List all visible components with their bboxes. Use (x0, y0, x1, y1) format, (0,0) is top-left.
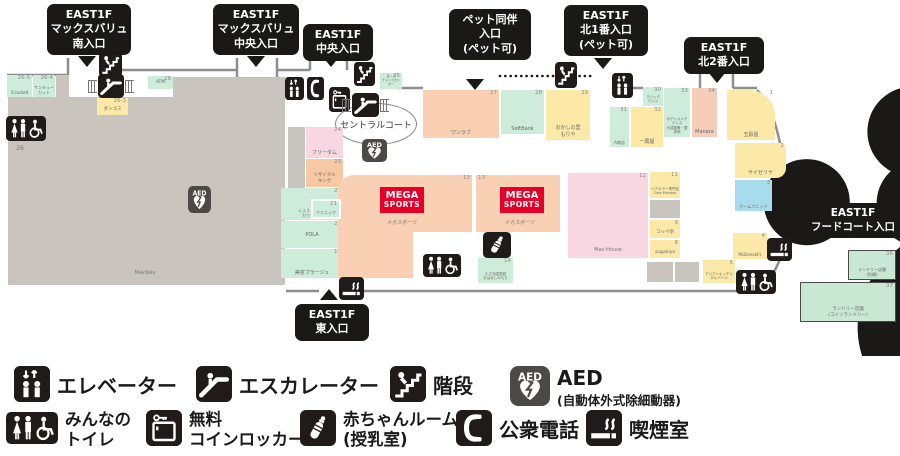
shop-name: ワンラブ (424, 130, 498, 137)
shop-number: 32 (654, 108, 661, 114)
legend-text: エレベーター (57, 375, 177, 397)
shop-block-28: 28SoftBank (501, 90, 544, 134)
shop-block-31: 31A商店 (610, 107, 629, 147)
shop-name: iCracked (8, 90, 31, 95)
phone-icon (456, 410, 492, 450)
shop-name: ランドリー店舗(別棟) (850, 267, 894, 277)
shop-block-27: 27ワンラブ (423, 90, 499, 138)
shop-name: sugakiya (651, 250, 679, 256)
shop-number: 27 (490, 91, 497, 97)
shop-name: おかしの里もりや (547, 125, 589, 138)
elev-icon (285, 77, 304, 100)
legend-label: 階段 (433, 375, 473, 397)
legend-text: 階段 (433, 375, 473, 397)
shop-number: 11 (671, 173, 678, 179)
shop-block-3: 3ゲームパニック (735, 180, 772, 211)
legend-sublabel: (自動体外式除細動器) (557, 390, 681, 409)
entrance-arrow-icon (247, 56, 265, 67)
shop-block-24: 24フリーダム (306, 127, 343, 158)
entrance-arrow-icon (322, 56, 340, 67)
legend-label: AED (557, 367, 681, 389)
building-block (338, 232, 413, 278)
shop-number: 26-3 (114, 99, 126, 105)
entrance-label: EAST1F北1番入口(ペット可) (564, 5, 648, 56)
shop-number: 8 (675, 241, 679, 247)
toilet-icon (736, 270, 776, 294)
legend-item-baby: 赤ちゃんルーム(授乳室) (300, 410, 458, 450)
baby-icon (300, 410, 336, 450)
shop-number: 24 (334, 128, 341, 134)
shop-number: 13 (478, 176, 485, 182)
shop-name: McDonald's (734, 252, 766, 257)
shop-block-23: 23リサイクルキング (306, 159, 343, 187)
legend-text: エスカレーター (239, 375, 379, 397)
esc-icon (196, 366, 232, 406)
shop-name: SoftBank (502, 126, 543, 133)
aed-icon (362, 139, 387, 162)
shop-block-21: 21クリニック (311, 199, 341, 219)
shop-name: 五穀屋 (728, 132, 774, 139)
legend-label: みんなのトイレ (65, 410, 131, 450)
shop-block-4: 4McDonald's (733, 233, 767, 259)
shop-block-26-5: 26-5iCracked (7, 75, 32, 97)
entrance-arrow-icon (793, 215, 804, 231)
shop-name: ボディメンテナンス大成整骨・整体院 (665, 117, 689, 135)
map-text: Mac-House (583, 248, 633, 253)
shop-name: 美容プラージュ (282, 270, 342, 277)
shop-block-34: 34Manara (692, 88, 717, 137)
shop-number: 12 (639, 174, 646, 180)
locker-icon (146, 410, 182, 450)
phone-icon (307, 77, 324, 100)
legend-item-toilet: みんなのトイレ (6, 410, 131, 450)
walkway-comb (342, 99, 351, 112)
stairs-icon (555, 62, 577, 88)
shop-name: 小さな図書館おはなしのもり (479, 272, 512, 281)
legend-text: 無料コインロッカー (189, 410, 305, 450)
shop-block-20: 20POLA (281, 221, 343, 248)
legend-label: 赤ちゃんルーム(授乳室) (343, 410, 458, 450)
smoke-icon (767, 238, 792, 261)
walkway-comb (125, 80, 134, 93)
entrance-arrow-icon (320, 289, 338, 300)
map-text: メガスポーツ (490, 221, 550, 226)
shop-number: 30 (654, 88, 661, 94)
shop-block-8: 8sugakiya (650, 240, 680, 258)
stairs-icon (354, 62, 375, 86)
map-text: メガスポーツ (372, 221, 432, 226)
shop-number: 28 (535, 91, 542, 97)
shop-name: サンキューカット (34, 85, 54, 95)
shop-number: 5 (730, 261, 734, 267)
floor-map-area: セントラルコート MaxValu スーパーマーケット Mac-House 26-… (0, 0, 900, 356)
shop-name: フリーダム (307, 150, 342, 157)
legend-item-elev: エレベーター (14, 366, 177, 406)
shop-name: ダンゴス (98, 107, 127, 113)
shop-name: ゲームパニック (736, 204, 771, 209)
entrance-label: EAST1Fフードコート入口 (806, 203, 900, 238)
entrance-label: EAST1Fマックスバリュ中央入口 (213, 4, 299, 55)
entrance-label: EAST1F北2番入口 (684, 37, 764, 74)
toilet-icon (6, 412, 58, 448)
shop-number: 37 (886, 284, 893, 290)
legend-label: エスカレーター (239, 375, 379, 397)
mall-floor-map: セントラルコート MaxValu スーパーマーケット Mac-House 26-… (0, 0, 900, 456)
shop-number: 34 (708, 89, 715, 95)
toilet-icon (423, 254, 461, 277)
entrance-label: EAST1Fマックスバリュ南入口 (47, 4, 131, 55)
aed-icon (510, 366, 550, 410)
shop-block-14: 14小さな図書館おはなしのもり (478, 258, 513, 283)
elev-icon (612, 73, 633, 98)
aed-icon (188, 186, 211, 213)
legend-item-aed: AED(自動体外式除細動器) (510, 366, 681, 410)
map-text: MaxValu (125, 271, 165, 276)
shop-block-5: 5アジアンキッチンダルバール (703, 260, 735, 283)
esc-icon (98, 74, 124, 98)
legend-label: エレベーター (57, 375, 177, 397)
shop-name: ATM (149, 80, 172, 86)
legend-text: 赤ちゃんルーム(授乳室) (343, 410, 458, 450)
shop-number: 2 (781, 144, 785, 150)
baby-icon (483, 232, 511, 258)
shop-name: サイゼリヤ (736, 170, 785, 177)
shop-number: 4 (762, 234, 766, 240)
legend-item-locker: 無料コインロッカー (146, 410, 305, 450)
shop-number: 26-4 (41, 76, 53, 82)
entrance-arrow-icon (466, 79, 484, 90)
shop-number: 23 (334, 160, 341, 166)
shop-number: 21 (330, 202, 337, 208)
entrance-arrow-icon (594, 58, 612, 69)
shop-name: アジアンキッチンダルバール (704, 272, 734, 281)
shop-block-11: 11ヘアカラー専門店Cinq Minutes (650, 172, 680, 198)
building-block (8, 97, 285, 285)
building-block (647, 262, 673, 282)
shop-name: 宝くじチャンスセンター (381, 75, 401, 87)
shop-block-1: 1五穀屋 (727, 90, 775, 140)
shop-block-19: 19美容プラージュ (281, 249, 343, 278)
legend-label: 公衆電話 (499, 419, 579, 441)
shop-name: ランドリー店舗(コインランドリー) (802, 307, 894, 319)
shop-number: 14 (504, 259, 511, 265)
mega-sports-logo: MEGASPORTS (500, 187, 544, 213)
building-block (288, 127, 305, 188)
shop-name: A商店 (611, 140, 628, 145)
mega-sports-logo: MEGASPORTS (380, 187, 424, 213)
mega-logo-line2: SPORTS (380, 201, 424, 209)
entrance-label: ペット同伴入口(ペット可) (449, 9, 531, 60)
legend-item-phone: 公衆電話 (456, 410, 579, 450)
legend-label: 喫煙室 (629, 419, 689, 441)
entrance-arrow-icon (708, 72, 726, 83)
legend-text: 喫煙室 (629, 419, 689, 441)
legend-text: 公衆電話 (499, 419, 579, 441)
shop-number: 36 (886, 252, 893, 258)
shop-block-35: 35宝くじチャンスセンター (380, 73, 402, 89)
walkway-comb (88, 80, 97, 93)
shop-name: クリニック (314, 210, 338, 215)
legend-text: AED(自動体外式除細動器) (557, 367, 681, 409)
shop-block-26: 26ATM (148, 76, 173, 89)
shop-number: 29 (581, 91, 588, 97)
shop-block-29: 29おかしの里もりや (546, 90, 590, 140)
shop-number: 26-5 (18, 76, 30, 82)
building-block (675, 262, 699, 282)
shop-name: Manara (693, 129, 716, 136)
map-text: 26 (10, 146, 30, 152)
mega-logo-line2: SPORTS (500, 201, 544, 209)
shop-block-26-3: 26-3ダンゴス (97, 98, 128, 115)
smoke-icon (586, 410, 622, 450)
building-block (56, 75, 69, 100)
shop-name: コッペ亭 (651, 230, 679, 236)
shop-number: 31 (620, 108, 627, 114)
legend-item-stairs: 階段 (390, 366, 473, 406)
shop-number: 1 (770, 91, 774, 97)
walkway-comb (380, 99, 389, 112)
shop-number: 33 (681, 89, 688, 95)
legend-item-esc: エスカレーター (196, 366, 379, 406)
shop-block-33: 33ボディメンテナンス大成整骨・整体院 (664, 88, 690, 137)
shop-block-36: 36ランドリー店舗(別棟) (848, 250, 896, 280)
shop-block-37: 37ランドリー店舗(コインランドリー) (800, 282, 896, 322)
toilet-icon (6, 116, 46, 141)
building-block (650, 200, 680, 218)
shop-name: ヘアカラー専門店Cinq Minutes (651, 187, 679, 196)
legend-label: 無料コインロッカー (189, 410, 305, 450)
legend-item-smoke: 喫煙室 (586, 410, 689, 450)
shop-number: 3 (767, 181, 771, 187)
shop-block-30: 30マジックミシン (643, 87, 663, 106)
shop-name: POLA (282, 231, 342, 238)
elev-icon (14, 366, 50, 406)
legend-text: みんなのトイレ (65, 410, 131, 450)
shop-number: 9 (675, 221, 679, 227)
entrance-arrow-icon (78, 56, 96, 67)
shop-block-26-4: 26-4サンキューカット (33, 75, 55, 97)
esc-icon (352, 93, 379, 117)
shop-block-32: 32一蔵屋 (631, 107, 663, 147)
shop-block-2: 2サイゼリヤ (735, 143, 786, 178)
shop-number: 13 (463, 176, 470, 182)
shop-block-9: 9コッペ亭 (650, 220, 680, 238)
stairs-icon (390, 366, 426, 406)
entrance-label: EAST1F東入口 (295, 304, 369, 341)
shop-name: 一蔵屋 (632, 139, 662, 146)
shop-block-12: 12 (568, 173, 648, 258)
shop-name: リサイクルキング (307, 173, 342, 185)
smoke-icon (339, 277, 364, 300)
shop-name: マジックミシン (644, 95, 662, 104)
building-block (173, 77, 285, 97)
